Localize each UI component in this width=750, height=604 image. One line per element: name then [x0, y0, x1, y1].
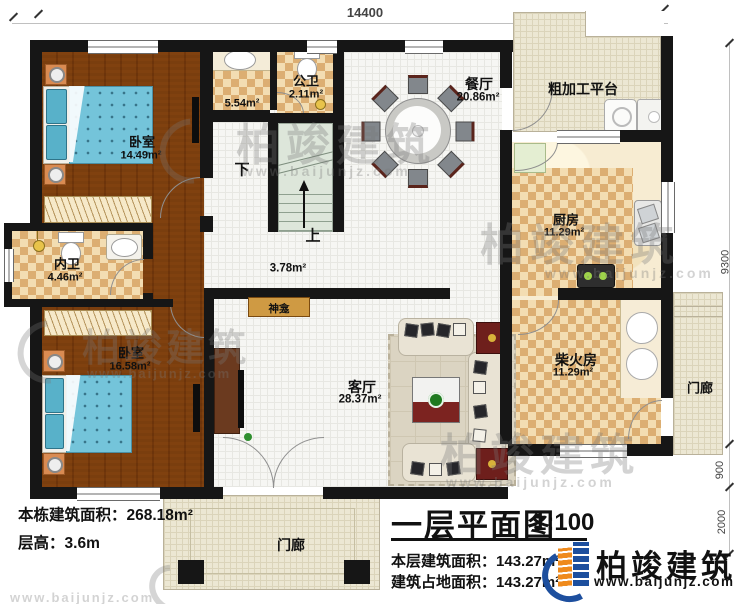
side-table-icon — [476, 448, 508, 480]
kitchen-sink-icon — [634, 200, 662, 246]
dimension-tick — [9, 12, 18, 21]
room-bedroom1-area: 14.49m² — [121, 151, 162, 162]
floor-height-line: 层高：3.6m — [18, 531, 100, 553]
stairs-up-label: 上 — [305, 229, 320, 244]
room-platform-label: 粗加工平台 — [548, 82, 618, 96]
wall — [333, 52, 344, 113]
building-area-label: 本栋建筑面积： — [18, 507, 127, 524]
lamp-icon — [47, 354, 63, 370]
wall — [204, 288, 214, 499]
wall — [213, 110, 270, 122]
sofa-icon — [402, 443, 476, 482]
wardrobe-icon — [44, 196, 152, 223]
room-public-bath-area: 2.11m² — [289, 90, 323, 101]
lamp-icon — [49, 67, 65, 83]
window — [307, 40, 337, 54]
floor-area-line: 本层建筑面积：143.27m² — [391, 550, 560, 571]
wall — [4, 231, 12, 249]
wall — [4, 223, 143, 231]
shower-icon — [33, 240, 45, 252]
chair-icon — [362, 122, 381, 142]
sink-icon — [224, 50, 256, 70]
wall — [627, 444, 673, 456]
wall — [143, 299, 173, 307]
floor-area-label: 本层建筑面积： — [391, 553, 496, 570]
room-dining-label: 餐厅 — [465, 77, 493, 91]
stairs-down-label: 下 — [234, 163, 249, 178]
dimension-right-upper: 9300 — [720, 235, 732, 290]
wall — [30, 307, 42, 499]
window — [661, 182, 675, 233]
wall — [200, 40, 213, 178]
room-public-bath-label: 公卫 — [293, 75, 319, 88]
window — [405, 40, 443, 54]
room-firewood-area: 11.29m² — [553, 368, 593, 379]
wall — [500, 44, 512, 88]
porch-right-step-line — [673, 316, 723, 317]
scale-label: 1:100 — [533, 509, 594, 537]
chair-icon — [408, 75, 428, 94]
dining-table-icon — [385, 98, 451, 164]
wall — [323, 487, 508, 499]
window — [557, 130, 620, 144]
wall — [30, 40, 42, 223]
floor-drain-icon — [315, 99, 326, 110]
wall — [4, 282, 12, 299]
dimension-top: 14400 — [330, 5, 400, 20]
room-living-area: 28.37m² — [339, 394, 382, 406]
building-area-value: 268.18m² — [127, 507, 193, 524]
floor-height-value: 3.6m — [65, 535, 100, 552]
wall — [333, 123, 344, 232]
wall — [143, 223, 153, 259]
wall — [508, 444, 560, 456]
wall — [500, 130, 512, 444]
coffee-table-icon — [412, 377, 460, 423]
wall — [200, 216, 213, 232]
lamp-icon — [48, 167, 64, 183]
chair-icon — [456, 122, 475, 142]
stove-icon — [577, 264, 615, 288]
tv-icon — [238, 370, 244, 428]
wall — [268, 113, 344, 123]
wall — [661, 36, 673, 182]
wok-stove-icon — [626, 312, 658, 344]
lamp-icon — [47, 457, 63, 473]
wall — [4, 299, 143, 307]
room-private-bath-area: 4.46m² — [48, 273, 83, 284]
plant-icon — [244, 433, 252, 441]
shrine-icon: 神龛 — [248, 297, 310, 317]
wall — [337, 40, 405, 52]
tv-icon — [193, 384, 200, 432]
wall — [620, 130, 661, 142]
chair-icon — [408, 169, 428, 188]
building-area-line: 本栋建筑面积：268.18m² — [18, 503, 193, 525]
room-firewood-label: 柴火房 — [555, 353, 597, 367]
footprint-label: 建筑占地面积： — [391, 574, 496, 591]
wall — [160, 487, 223, 499]
room-hall-area: 3.78m² — [270, 263, 306, 275]
stair-arrow-head — [299, 180, 309, 191]
tv-cabinet-icon — [214, 348, 240, 434]
footprint-line: 建筑占地面积：143.27m² — [391, 571, 560, 592]
room-living-label: 客厅 — [348, 380, 376, 394]
porch-column — [178, 560, 204, 584]
platform-notch — [585, 11, 664, 37]
window — [88, 40, 158, 54]
brand-url: www.baijunjz.com — [594, 574, 735, 589]
dimension-right-lower: 2000 — [716, 498, 728, 546]
room-private-bath-label: 内卫 — [54, 258, 80, 271]
watermark-url: www.baijunjz.com — [10, 591, 154, 604]
porch-bottom-path — [190, 508, 355, 574]
wall — [158, 40, 307, 52]
porch-right-step-line — [673, 306, 723, 307]
stair-arrow — [303, 190, 305, 228]
floor-plan: 14400 9300 900 2000 — [0, 0, 750, 604]
tv-icon — [192, 97, 199, 143]
stair-treads — [279, 186, 332, 231]
wall — [558, 288, 661, 300]
room-bath-hall-area: 5.54m² — [225, 99, 260, 110]
porch-column — [344, 560, 370, 584]
window — [4, 249, 14, 282]
washing-machine-icon — [604, 99, 637, 134]
room-dining-area: 20.86m² — [457, 92, 500, 104]
bed-icon — [42, 375, 130, 451]
window — [77, 487, 160, 501]
room-bedroom2-area: 16.58m² — [110, 362, 151, 373]
sofa-icon — [398, 318, 474, 356]
plant-icon — [428, 392, 444, 408]
wall — [270, 47, 277, 110]
room-porch-right-label: 门廊 — [687, 382, 713, 395]
brand-logo-icon — [542, 538, 594, 596]
wall — [268, 123, 278, 232]
room-bedroom2-label: 卧室 — [118, 347, 144, 360]
wardrobe-icon — [44, 310, 152, 336]
wall — [661, 233, 673, 398]
wok-stove-icon — [626, 348, 658, 380]
room-bedroom1-label: 卧室 — [129, 136, 155, 149]
shrine-label: 神龛 — [249, 301, 309, 316]
floor-height-label: 层高： — [18, 535, 65, 552]
dimension-tick — [34, 9, 43, 18]
sink-icon — [106, 234, 142, 260]
room-porch-bottom-label: 门廊 — [277, 538, 305, 552]
wall — [30, 487, 77, 499]
window — [560, 444, 627, 458]
right-dimension-line — [729, 44, 730, 556]
room-kitchen-area: 11.29m² — [544, 228, 584, 239]
room-kitchen-label: 厨房 — [553, 214, 579, 227]
